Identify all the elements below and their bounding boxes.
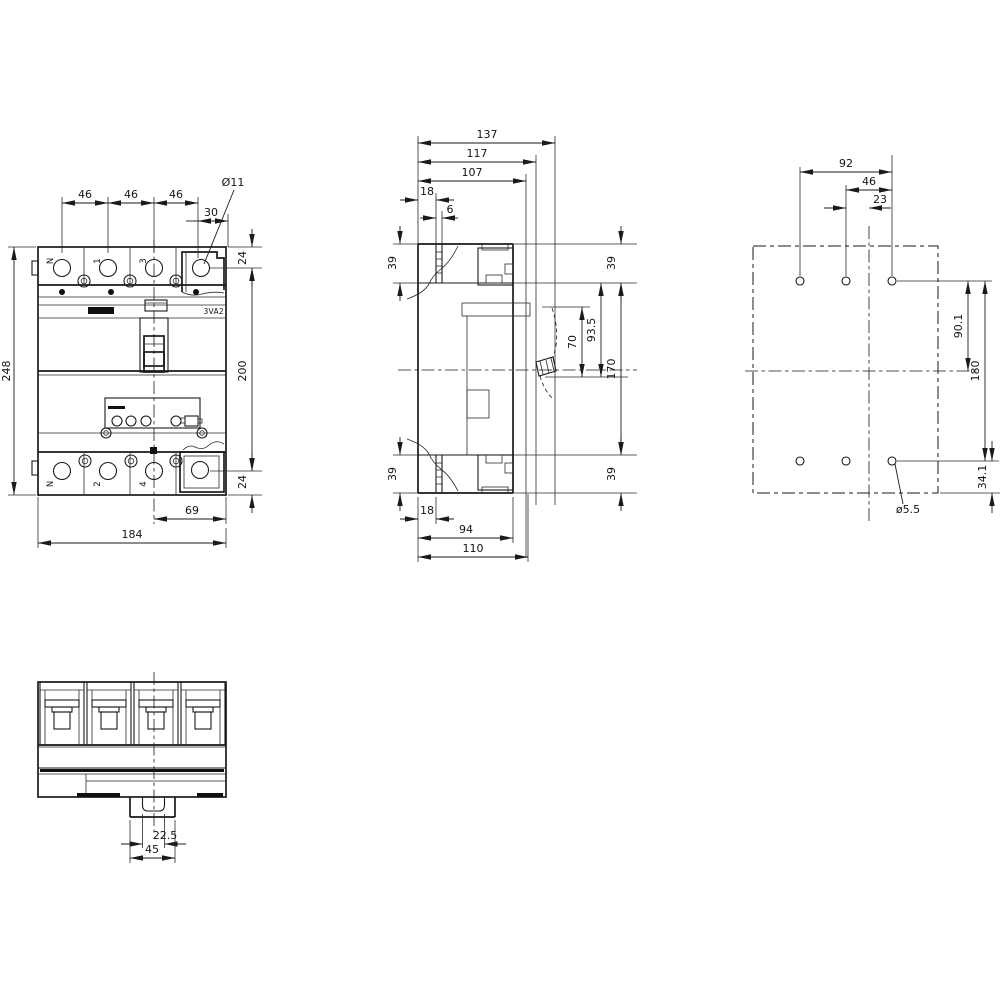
side-view-dimensions: 137 117 107 18 6 39 39 39 170 <box>386 128 628 562</box>
dim-front-edge-top: 24 <box>236 251 249 265</box>
dim-drill-rows-180: 180 <box>969 361 982 382</box>
dim-front-edge-bottom: 24 <box>236 475 249 489</box>
dim-front-height: 248 <box>0 361 13 382</box>
dim-drill-edge-34-1: 34.1 <box>976 465 989 490</box>
dim-front-center-to-edge: 69 <box>185 504 199 517</box>
callout-front-hole-diameter: Ø11 <box>222 176 245 189</box>
drilling-pattern-view: 92 46 23 90.1 180 34.1 ø5.5 <box>745 155 1000 521</box>
dim-side-depth-107: 107 <box>462 166 483 179</box>
dim-drill-span-92: 92 <box>839 157 853 170</box>
terminal-block <box>134 682 178 745</box>
mounting-hole <box>842 277 850 285</box>
dim-side-rear-94: 94 <box>459 523 473 536</box>
dim-side-rear-110: 110 <box>463 542 484 555</box>
terminal-label-top-n: N <box>46 258 56 264</box>
dim-front-pole-pitch-2: 46 <box>124 188 138 201</box>
terminal-block <box>87 682 131 745</box>
dim-front-row-spacing: 200 <box>236 361 249 382</box>
drilling-pattern-dimensions: 92 46 23 90.1 180 34.1 ø5.5 <box>800 155 1000 516</box>
dim-bottom-rail-45: 45 <box>145 843 159 856</box>
dim-drill-pitch-46: 46 <box>862 175 876 188</box>
dim-side-body-170: 170 <box>605 359 618 380</box>
bottom-view-linework <box>38 672 226 832</box>
dim-side-front-step-6: 6 <box>447 203 454 216</box>
terminal-label-bottom-4: 4 <box>139 481 149 486</box>
terminal-label-top-1: 1 <box>93 258 103 263</box>
bottom-view-dimensions: 22.5 45 <box>121 814 186 863</box>
dim-drill-offset-23: 23 <box>873 193 887 206</box>
circuit-breaker-dimension-drawing: 46 46 46 30 Ø11 248 24 <box>0 0 1000 1000</box>
mounting-hole <box>842 457 850 465</box>
callout-drill-hole-diameter: ø5.5 <box>896 503 920 516</box>
dim-side-shroud-bottom-right: 39 <box>605 467 618 481</box>
dim-side-rear-step-18: 18 <box>420 504 434 517</box>
dim-side-shroud-bottom-left: 39 <box>386 467 399 481</box>
dim-front-pole-pitch-1: 46 <box>78 188 92 201</box>
dimension-drawing-page: 46 46 46 30 Ø11 248 24 <box>0 0 1000 1000</box>
terminal-label-bottom-n: N <box>46 481 56 487</box>
bottom-view: 22.5 45 <box>38 672 226 863</box>
terminal-label-bottom-2: 2 <box>93 481 103 486</box>
front-view: 46 46 46 30 Ø11 248 24 <box>0 176 262 548</box>
dim-bottom-slot-22-5: 22.5 <box>153 829 178 842</box>
dim-side-contact-93-5: 93.5 <box>585 318 598 343</box>
terminal-block <box>181 682 225 745</box>
mounting-hole <box>888 457 896 465</box>
dim-side-shroud-top-left: 39 <box>386 256 399 270</box>
side-view-linework <box>393 136 637 558</box>
dim-front-hole-offset: 30 <box>204 206 218 219</box>
dim-side-depth-117: 117 <box>467 147 488 160</box>
side-view: 137 117 107 18 6 39 39 39 170 <box>386 128 637 562</box>
mounting-hole <box>796 457 804 465</box>
dim-side-front-step-18: 18 <box>420 185 434 198</box>
mounting-hole <box>796 277 804 285</box>
terminal-block <box>40 682 84 745</box>
dim-side-depth-overall: 137 <box>477 128 498 141</box>
terminal-label-top-3: 3 <box>139 258 149 263</box>
front-view-linework <box>32 240 226 524</box>
product-series-label: 3VA2 <box>203 307 224 316</box>
drilling-pattern-linework <box>745 226 978 521</box>
dim-drill-center-90-1: 90.1 <box>952 314 965 339</box>
dim-side-shroud-top-right: 39 <box>605 256 618 270</box>
mounting-hole <box>888 277 896 285</box>
dim-front-width: 184 <box>122 528 143 541</box>
dim-side-contact-70: 70 <box>566 335 579 349</box>
dim-front-pole-pitch-3: 46 <box>169 188 183 201</box>
